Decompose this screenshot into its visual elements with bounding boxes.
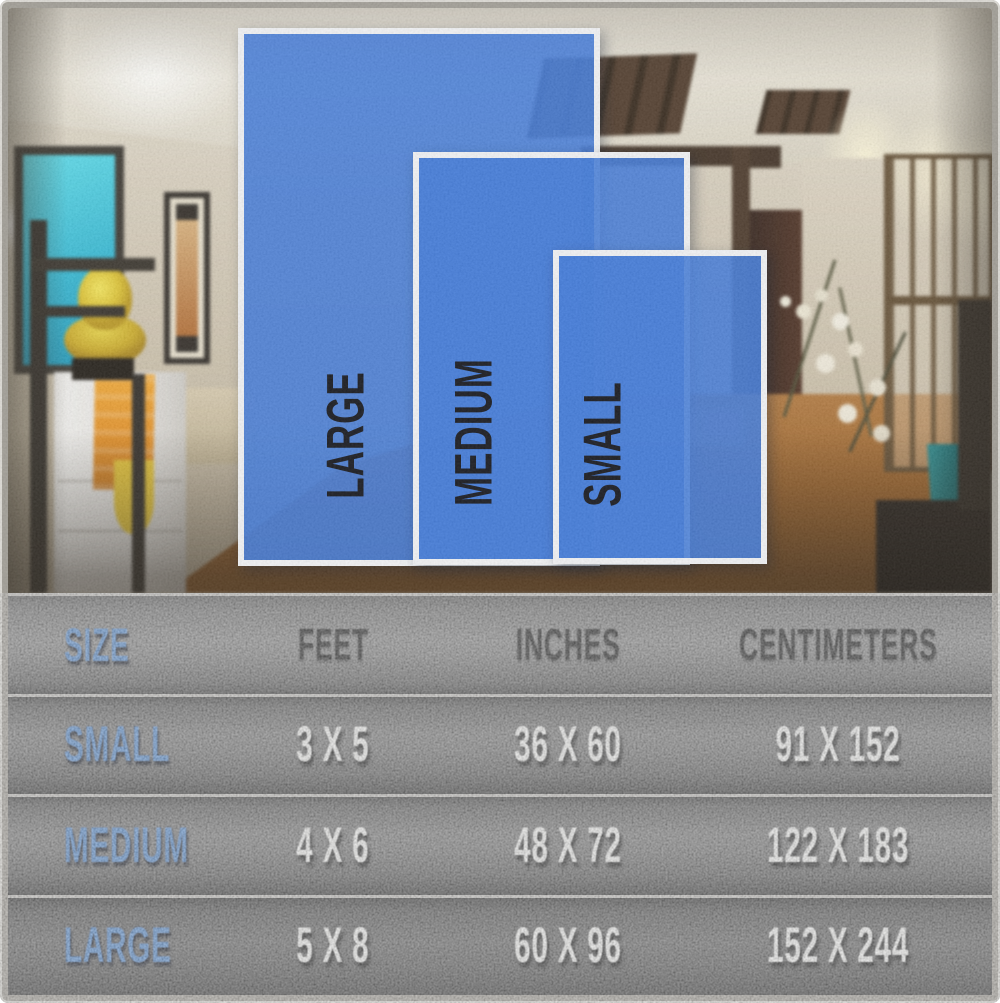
dark-wood-post	[30, 220, 47, 593]
centimeters-value: 152 X 244	[703, 927, 992, 965]
col-header-inches: INCHES	[433, 628, 703, 662]
rug-label-small: SMALL	[574, 381, 634, 507]
size-table: SIZE FEET INCHES CENTIMETERS SMALL 3 X 5…	[8, 593, 992, 995]
rug-label-medium: MEDIUM	[445, 358, 505, 506]
table-row-medium: MEDIUM 4 X 6 48 X 72 122 X 183	[8, 794, 992, 895]
dark-wall-column	[958, 300, 992, 510]
size-label: MEDIUM	[8, 827, 233, 865]
col-header-centimeters: CENTIMETERS	[703, 628, 992, 662]
dark-wood-crossbar	[30, 258, 155, 271]
inches-value: 48 X 72	[433, 827, 703, 865]
dark-wood-crossbar	[30, 306, 125, 317]
centimeters-value: 122 X 183	[703, 827, 992, 865]
buddha-statue-head	[78, 266, 132, 330]
rug-label-large: LARGE	[317, 371, 377, 499]
col-header-size: SIZE	[8, 627, 233, 663]
inches-value: 36 X 60	[433, 726, 703, 764]
feet-value: 4 X 6	[233, 827, 433, 865]
size-label: SMALL	[8, 726, 233, 764]
size-label: LARGE	[8, 927, 233, 965]
centimeters-value: 91 X 152	[703, 726, 992, 764]
dark-cabinet	[876, 500, 992, 593]
ceiling-light-glow	[63, 8, 243, 138]
dark-wood-post	[132, 374, 145, 593]
feet-value: 5 X 8	[233, 927, 433, 965]
buddha-statue-base	[72, 358, 134, 380]
rug-size-chart-infographic: LARGE MEDIUM SMALL SIZE FEET INCHES CENT…	[0, 0, 1000, 1003]
orchid-blossoms	[780, 296, 791, 307]
room-photo: LARGE MEDIUM SMALL	[8, 8, 992, 593]
framed-artwork-picture	[176, 220, 198, 336]
sideboard-drawer-line	[58, 530, 182, 532]
table-row-small: SMALL 3 X 5 36 X 60 91 X 152	[8, 694, 992, 795]
inches-value: 60 X 96	[433, 927, 703, 965]
col-header-feet: FEET	[233, 628, 433, 662]
feet-value: 3 X 5	[233, 726, 433, 764]
table-header-row: SIZE FEET INCHES CENTIMETERS	[8, 593, 992, 694]
table-row-large: LARGE 5 X 8 60 X 96 152 X 244	[8, 895, 992, 996]
